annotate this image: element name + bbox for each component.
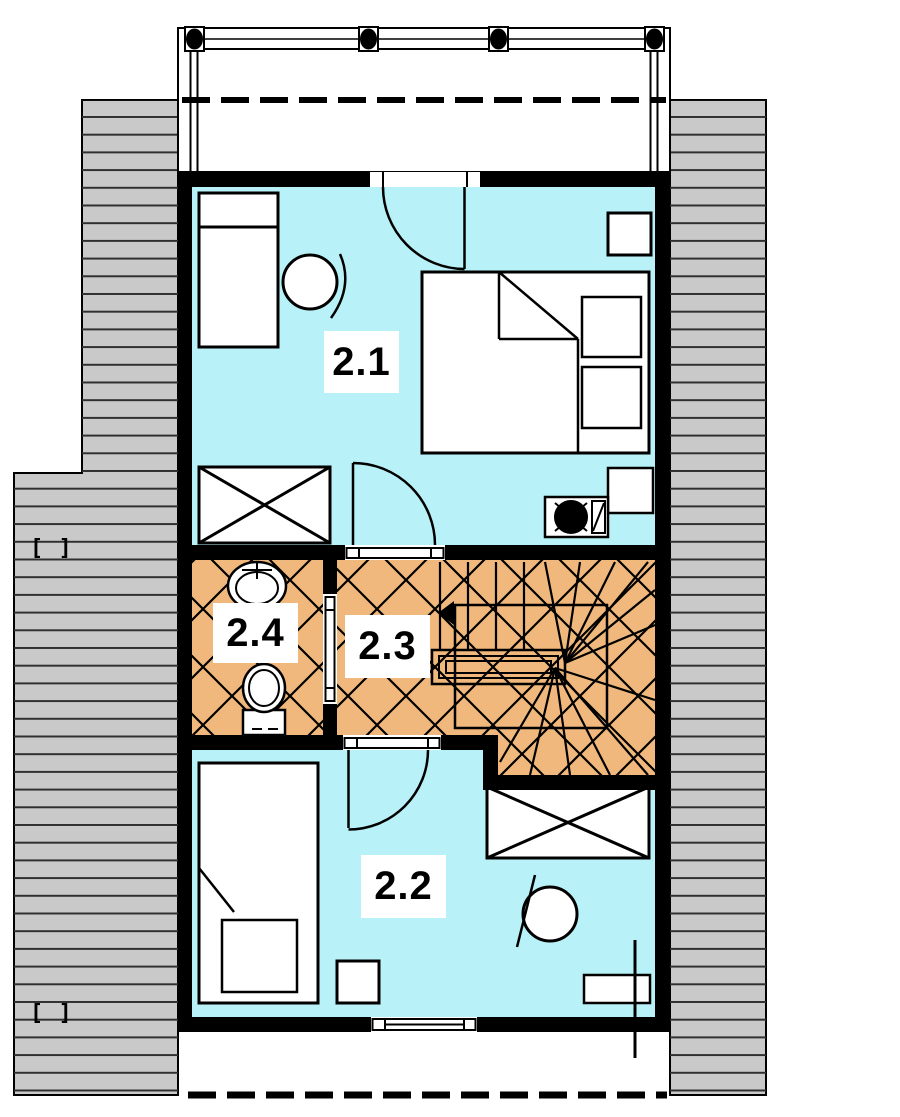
bed-icon [199, 763, 318, 1003]
single-bed-icon [199, 193, 278, 347]
roof-left [14, 100, 178, 1095]
room-label-2-4: 2.4 [213, 603, 298, 663]
toilet-icon [243, 664, 285, 735]
roof-marker-upper: [ ] [30, 536, 73, 561]
wardrobe-icon [487, 787, 649, 858]
roof-right [670, 100, 766, 1095]
door-frame-2-1 [345, 545, 445, 560]
balcony-post [359, 27, 378, 51]
balcony-door-opening [370, 172, 480, 187]
balcony-post [489, 27, 508, 51]
wall-stair-bottom [483, 775, 655, 790]
room-label-2-3: 2.3 [345, 615, 430, 678]
double-bed-icon [422, 272, 649, 453]
window-bottom [371, 1017, 477, 1032]
room-label-2-2: 2.2 [361, 855, 446, 918]
wall-right [655, 172, 670, 1032]
balcony-post [185, 27, 204, 51]
stool-icon [337, 961, 379, 1003]
balcony-post [645, 27, 664, 51]
door-frame-2-2 [343, 735, 441, 750]
shelf-icon [584, 975, 650, 1003]
door-frame-bathroom [323, 594, 337, 704]
wardrobe-icon [199, 467, 330, 543]
roof-marker-lower: [ ] [30, 1001, 73, 1026]
wall-left [178, 172, 192, 1032]
plant-stand-icon [545, 497, 608, 537]
floor-plan: 2.1 2.4 2.3 2.2 [ ] [ ] [0, 0, 900, 1117]
room-label-2-1: 2.1 [324, 331, 399, 393]
side-table-icon [608, 468, 653, 513]
floor-plan-drawing [0, 0, 900, 1117]
nightstand-icon [608, 213, 651, 255]
